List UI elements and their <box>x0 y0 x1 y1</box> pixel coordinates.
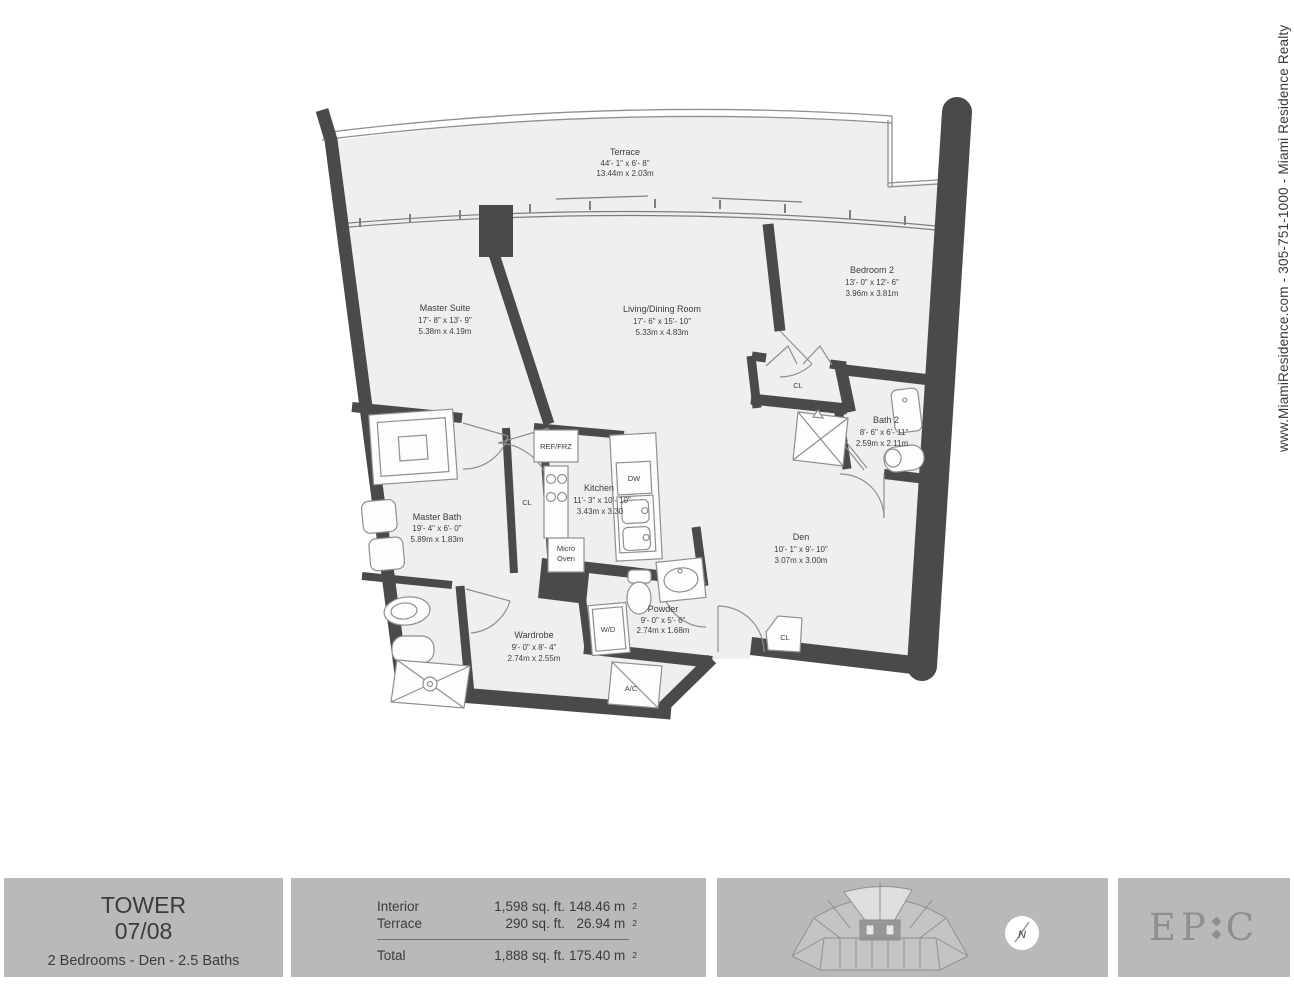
svg-text:13.44m x 2.03m: 13.44m x 2.03m <box>596 169 654 178</box>
stats-sup: 2 <box>632 947 637 964</box>
svg-text:3.96m x 3.81m: 3.96m x 3.81m <box>846 289 899 298</box>
label-cl-bedroom2: CL <box>793 381 803 390</box>
stats-sqft: 290 sq. ft. <box>463 915 565 932</box>
svg-text:17'- 6" x 15'- 10": 17'- 6" x 15'- 10" <box>633 317 691 326</box>
contact-strip-vertical-text: www.MiamiResidence.com - 305-751-1000 - … <box>1276 4 1291 452</box>
bath2-sink <box>891 387 923 433</box>
compass-n: N <box>1018 929 1026 941</box>
svg-text:13'- 0" x 12'- 6": 13'- 0" x 12'- 6" <box>845 278 899 287</box>
bath2-shower <box>793 410 848 466</box>
epic-logo-diamonds-icon <box>1213 918 1220 938</box>
svg-text:2.74m x 2.55m: 2.74m x 2.55m <box>508 654 561 663</box>
stats-row-interior: Interior 1,598 sq. ft. 148.46 m 2 <box>377 898 637 915</box>
keyplan-svg: N <box>717 878 1108 977</box>
stats-sqm: 148.46 m <box>569 898 625 915</box>
svg-text:Terrace: Terrace <box>610 147 640 157</box>
label-cl-corridor: CL <box>522 498 532 507</box>
label-cl-entry: CL <box>780 633 790 642</box>
svg-text:Powder: Powder <box>648 604 679 614</box>
stats-label: Terrace <box>377 915 463 932</box>
epic-logo: EP C <box>1149 906 1259 949</box>
svg-text:3.43m x 3.30: 3.43m x 3.30 <box>577 507 624 516</box>
room-label-master-suite: Master Suite 17'- 8" x 13'- 9" 5.38m x 4… <box>418 303 472 336</box>
powder-sink <box>656 558 706 603</box>
svg-text:Living/Dining Room: Living/Dining Room <box>623 304 701 314</box>
label-dw: DW <box>628 474 641 483</box>
shower <box>391 660 470 708</box>
label-wd: W/D <box>601 625 616 634</box>
stats-sqm: 26.94 m <box>569 915 625 932</box>
label-ac: A/C <box>625 684 638 693</box>
stats-row-total: Total 1,888 sq. ft. 175.40 m 2 <box>377 947 637 964</box>
svg-text:5.89m x 1.83m: 5.89m x 1.83m <box>411 535 464 544</box>
svg-text:8'- 6" x 6'- 11": 8'- 6" x 6'- 11" <box>860 428 909 437</box>
label-ref-frz: REF/FRZ <box>540 442 572 451</box>
stats-sqft: 1,888 sq. ft. <box>463 947 565 964</box>
room-label-master-bath: Master Bath 19'- 4" x 6'- 0" 5.89m x 1.8… <box>411 512 464 544</box>
svg-text:44'- 1" x 6'- 8": 44'- 1" x 6'- 8" <box>600 159 649 168</box>
svg-text:3.07m x 3.00m: 3.07m x 3.00m <box>775 556 828 565</box>
footer-keyplan-box: N <box>717 878 1108 977</box>
room-label-bedroom2: Bedroom 2 13'- 0" x 12'- 6" 3.96m x 3.81… <box>845 265 899 298</box>
label-oven: Oven <box>557 554 575 563</box>
bidet <box>392 636 434 663</box>
svg-text:5.38m x 4.19m: 5.38m x 4.19m <box>419 327 472 336</box>
svg-text:Wardrobe: Wardrobe <box>514 630 553 640</box>
epic-logo-ep: EP <box>1149 906 1211 949</box>
svg-text:5.33m x 4.83m: 5.33m x 4.83m <box>636 328 689 337</box>
svg-text:Den: Den <box>793 532 810 542</box>
tower-units: 07/08 <box>4 918 283 944</box>
tower-subtitle: 2 Bedrooms - Den - 2.5 Baths <box>4 953 283 969</box>
svg-text:2.74m x 1.68m: 2.74m x 1.68m <box>637 626 690 635</box>
room-label-wardrobe: Wardrobe 9'- 0" x 8'- 4" 2.74m x 2.55m <box>508 630 561 663</box>
svg-text:9'- 0" x 5'- 6": 9'- 0" x 5'- 6" <box>641 616 686 625</box>
svg-text:17'- 8" x 13'- 9": 17'- 8" x 13'- 9" <box>418 316 472 325</box>
footer-tower-box: TOWER 07/08 2 Bedrooms - Den - 2.5 Baths <box>4 878 283 977</box>
stats-sup: 2 <box>632 898 637 915</box>
svg-text:11'- 3" x 10'- 10": 11'- 3" x 10'- 10" <box>573 496 631 505</box>
tower-title: TOWER <box>4 892 283 918</box>
cooktop <box>544 466 568 538</box>
stats-row-terrace: Terrace 290 sq. ft. 26.94 m 2 <box>377 915 637 932</box>
label-micro: Micro <box>557 544 575 553</box>
svg-text:Kitchen: Kitchen <box>584 483 614 493</box>
svg-text:2.59m x 2.11m: 2.59m x 2.11m <box>856 439 909 448</box>
footer-stats-box: Interior 1,598 sq. ft. 148.46 m 2 Terrac… <box>291 878 706 977</box>
stats-sqm: 175.40 m <box>569 947 625 964</box>
stats-label: Total <box>377 947 463 964</box>
epic-logo-c: C <box>1226 906 1259 949</box>
svg-text:Master Bath: Master Bath <box>413 512 462 522</box>
floorplan-page: www.MiamiResidence.com - 305-751-1000 - … <box>0 0 1294 996</box>
footer-logo-box: EP C <box>1118 878 1290 977</box>
bathtub <box>369 409 458 485</box>
stats-sup: 2 <box>632 915 637 932</box>
compass: N <box>1005 916 1039 950</box>
svg-text:9'- 0" x 8'- 4": 9'- 0" x 8'- 4" <box>512 643 557 652</box>
svg-text:10'- 1" x 9'- 10": 10'- 1" x 9'- 10" <box>774 545 828 554</box>
building-keyplan <box>792 882 968 970</box>
svg-text:Bath 2: Bath 2 <box>873 415 899 425</box>
svg-text:Master Suite: Master Suite <box>420 303 471 313</box>
stats-divider <box>377 939 629 940</box>
svg-text:Bedroom 2: Bedroom 2 <box>850 265 894 275</box>
svg-text:19'- 4" x 6'- 0": 19'- 4" x 6'- 0" <box>412 524 461 533</box>
stats-sqft: 1,598 sq. ft. <box>463 898 565 915</box>
stats-label: Interior <box>377 898 463 915</box>
floor-plan-svg: Terrace 44'- 1" x 6'- 8" 13.44m x 2.03m … <box>0 0 1294 876</box>
